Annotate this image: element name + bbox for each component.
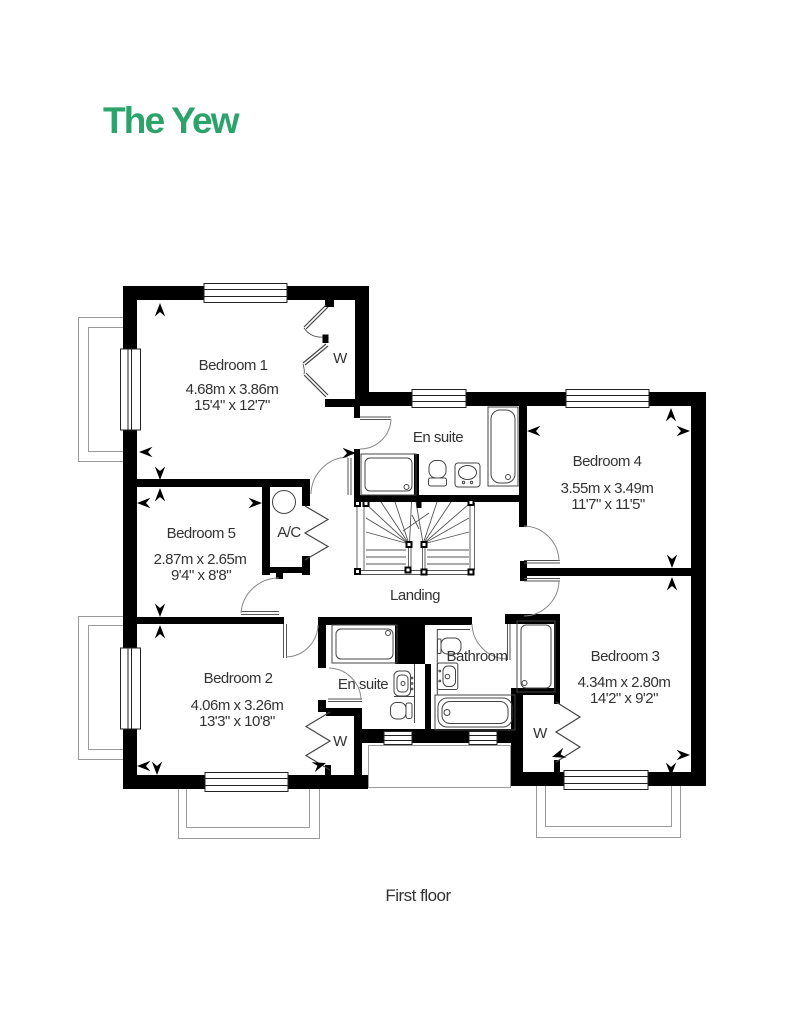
svg-text:En suite: En suite (338, 676, 388, 693)
svg-text:15'4" x 12'7": 15'4" x 12'7" (194, 397, 270, 414)
svg-text:4.06m x 3.26m: 4.06m x 3.26m (191, 697, 284, 714)
svg-text:11'7" x 11'5": 11'7" x 11'5" (571, 496, 645, 513)
svg-text:Bedroom 1: Bedroom 1 (199, 357, 268, 374)
svg-text:3.55m x 3.49m: 3.55m x 3.49m (561, 480, 654, 497)
svg-text:Landing: Landing (390, 587, 440, 604)
svg-text:Bedroom 3: Bedroom 3 (591, 648, 660, 665)
svg-text:Bathroom: Bathroom (446, 648, 507, 665)
svg-text:W: W (333, 733, 348, 750)
svg-text:Bedroom 5: Bedroom 5 (167, 525, 236, 542)
svg-text:En suite: En suite (413, 429, 463, 446)
svg-text:9'4" x 8'8": 9'4" x 8'8" (171, 567, 231, 584)
svg-text:First floor: First floor (385, 886, 451, 905)
svg-text:A/C: A/C (277, 524, 301, 541)
svg-text:Bedroom 4: Bedroom 4 (573, 453, 642, 470)
svg-text:W: W (333, 350, 348, 367)
svg-text:4.34m x 2.80m: 4.34m x 2.80m (578, 674, 671, 691)
svg-text:4.68m x 3.86m: 4.68m x 3.86m (186, 381, 279, 398)
svg-text:Bedroom 2: Bedroom 2 (204, 670, 273, 687)
svg-text:14'2" x 9'2": 14'2" x 9'2" (590, 690, 658, 707)
svg-text:The Yew: The Yew (103, 100, 240, 141)
svg-text:13'3" x 10'8": 13'3" x 10'8" (199, 713, 275, 730)
svg-text:2.87m x 2.65m: 2.87m x 2.65m (154, 551, 247, 568)
svg-text:W: W (533, 725, 548, 742)
